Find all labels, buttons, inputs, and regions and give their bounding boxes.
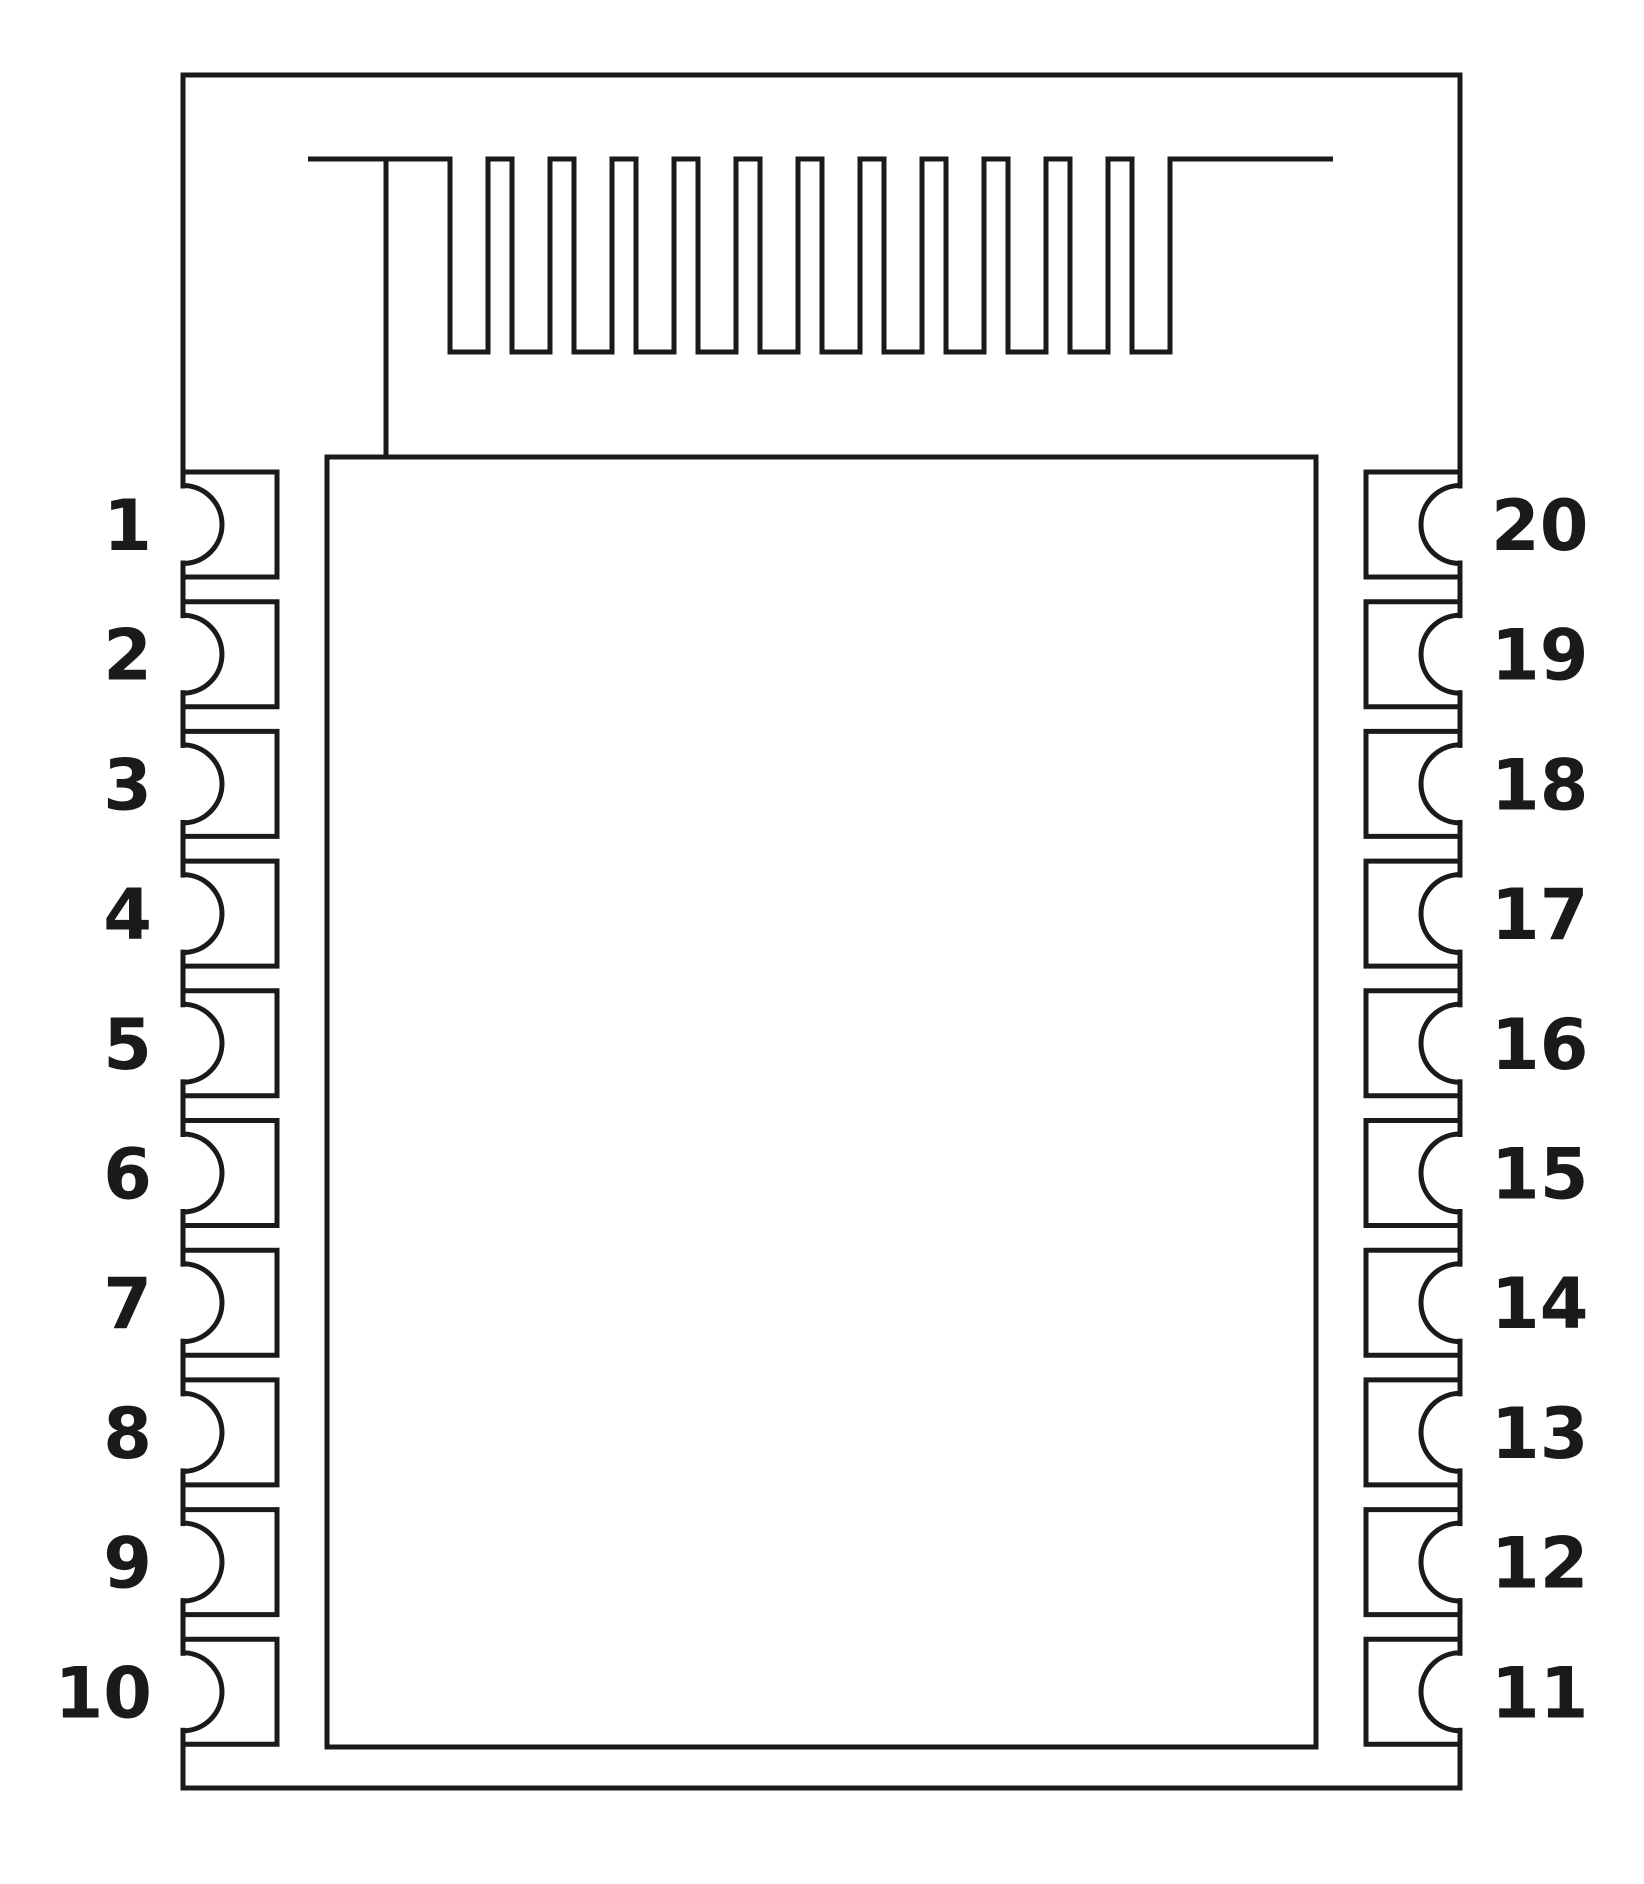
pin-number-7: 7: [103, 1263, 152, 1345]
pin-pad-5: [183, 991, 277, 1096]
pad-notch-mask: [1457, 878, 1463, 950]
pin-number-16: 16: [1491, 1004, 1588, 1086]
pin-pad-12: [1366, 1510, 1460, 1615]
pin-number-8: 8: [103, 1393, 152, 1475]
pad-notch-mask: [1457, 1526, 1463, 1598]
pin-number-1: 1: [103, 485, 152, 567]
pin-pad-14: [1366, 1250, 1460, 1355]
pin-number-6: 6: [103, 1134, 152, 1216]
pin-number-9: 9: [103, 1523, 152, 1605]
pin-number-20: 20: [1491, 485, 1588, 567]
pad-notch-mask: [180, 878, 186, 950]
pin-number-19: 19: [1491, 615, 1588, 697]
pin-pad-4: [183, 861, 277, 966]
pin-number-11: 11: [1491, 1652, 1588, 1734]
pad-notch-mask: [180, 1007, 186, 1079]
pin-number-3: 3: [103, 744, 152, 826]
pin-number-17: 17: [1491, 874, 1588, 956]
pin-pad-17: [1366, 861, 1460, 966]
pin-number-5: 5: [103, 1004, 152, 1086]
pad-notch-mask: [180, 1396, 186, 1468]
pin-pad-7: [183, 1250, 277, 1355]
pad-notch-mask: [1457, 1656, 1463, 1728]
pad-notch-mask: [1457, 1007, 1463, 1079]
pad-notch-mask: [180, 748, 186, 820]
pin-number-13: 13: [1491, 1393, 1588, 1475]
pin-number-2: 2: [103, 615, 152, 697]
module-pinout-svg: 12345678910 20191817161514131211: [0, 0, 1644, 1884]
pin-pad-10: [183, 1639, 277, 1744]
module-pinout-figure: 12345678910 20191817161514131211: [0, 0, 1644, 1884]
pin-number-18: 18: [1491, 744, 1588, 826]
pin-pad-19: [1366, 602, 1460, 707]
pin-number-4: 4: [103, 874, 152, 956]
pin-pad-15: [1366, 1121, 1460, 1226]
pin-pad-13: [1366, 1380, 1460, 1485]
pin-pad-1: [183, 472, 277, 577]
pad-notch-mask: [1457, 618, 1463, 690]
pin-number-10: 10: [55, 1652, 152, 1734]
pad-notch-mask: [1457, 489, 1463, 561]
pad-notch-mask: [180, 618, 186, 690]
pin-pad-11: [1366, 1639, 1460, 1744]
pad-notch-mask: [180, 1267, 186, 1339]
pin-number-15: 15: [1491, 1134, 1588, 1216]
pin-number-12: 12: [1491, 1523, 1588, 1605]
pin-pad-20: [1366, 472, 1460, 577]
pin-pad-9: [183, 1510, 277, 1615]
pad-notch-mask: [1457, 748, 1463, 820]
pin-pad-16: [1366, 991, 1460, 1096]
pad-notch-mask: [1457, 1137, 1463, 1209]
pad-notch-mask: [180, 489, 186, 561]
pin-pad-2: [183, 602, 277, 707]
pad-notch-mask: [180, 1526, 186, 1598]
pin-pad-8: [183, 1380, 277, 1485]
pad-notch-mask: [1457, 1267, 1463, 1339]
right-pin-pads: 20191817161514131211: [1366, 472, 1588, 1744]
pin-number-14: 14: [1491, 1263, 1588, 1345]
left-pin-pads: 12345678910: [55, 472, 277, 1744]
pad-notch-mask: [180, 1656, 186, 1728]
shield-region-outline: [327, 457, 1316, 1747]
pin-pad-3: [183, 731, 277, 836]
pad-notch-mask: [1457, 1396, 1463, 1468]
pcb-antenna-trace: [308, 159, 1333, 457]
pin-pad-18: [1366, 731, 1460, 836]
pad-notch-mask: [180, 1137, 186, 1209]
pin-pad-6: [183, 1121, 277, 1226]
